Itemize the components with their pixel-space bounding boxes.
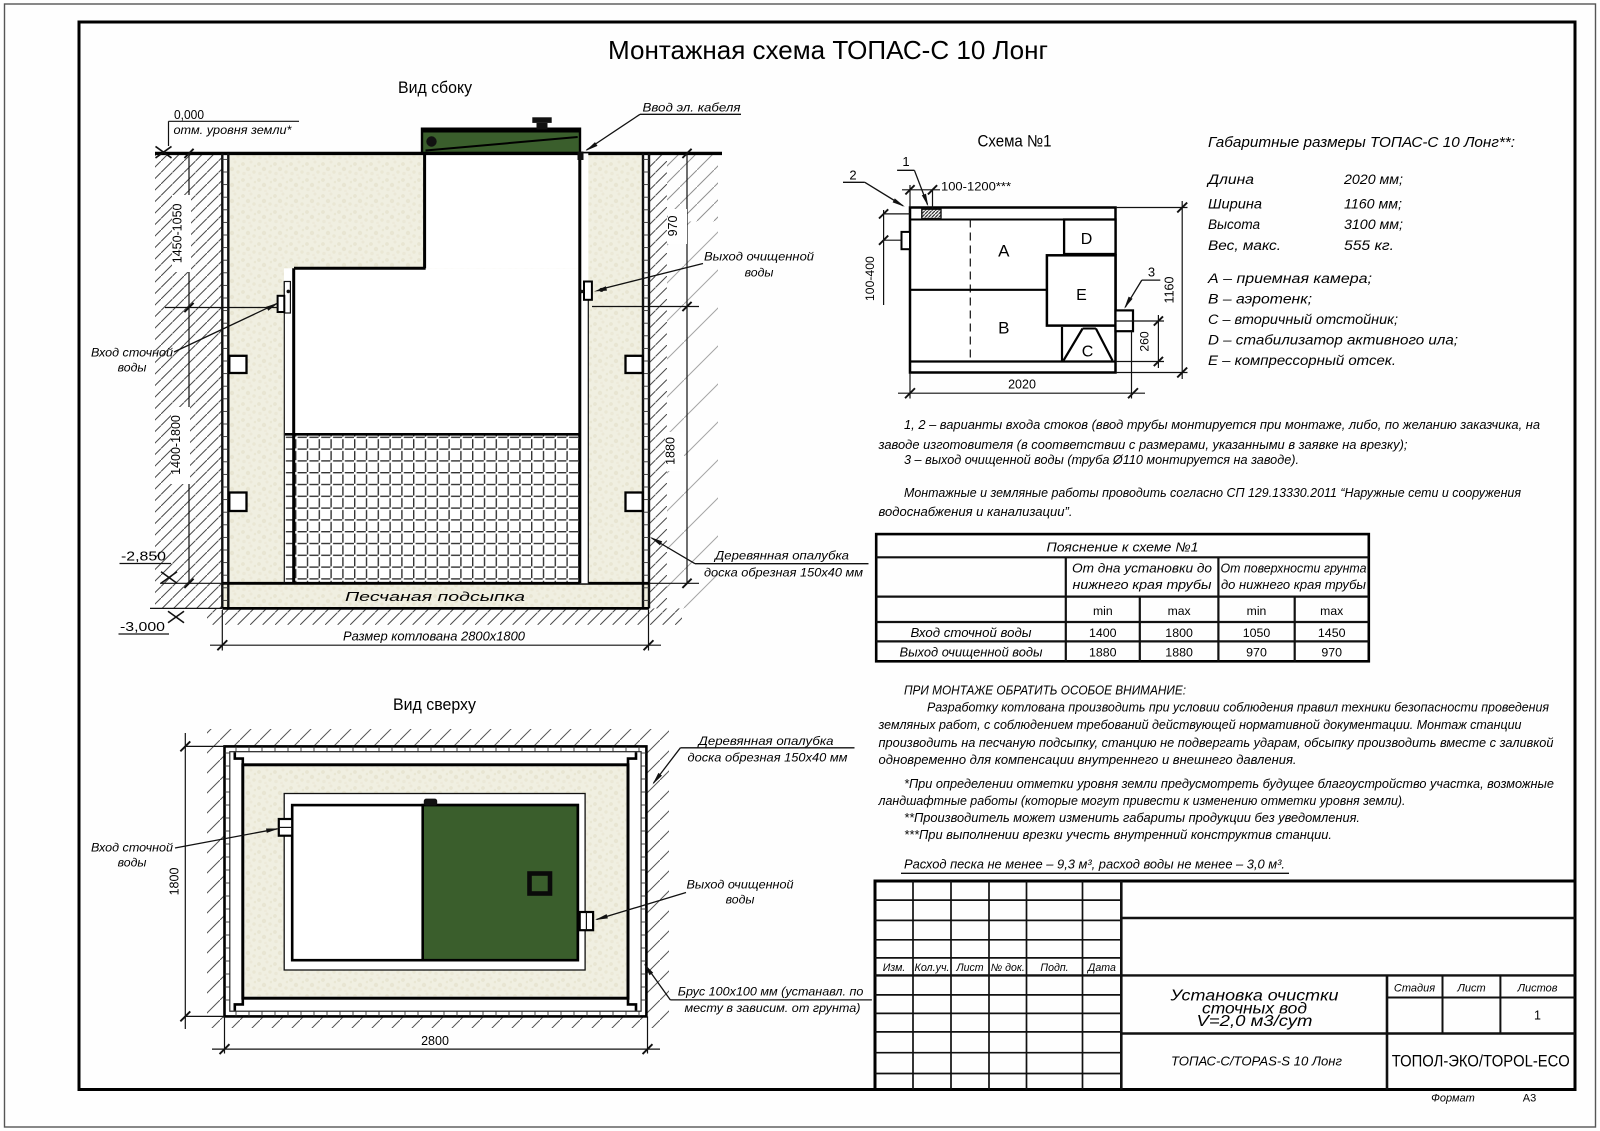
svg-text:2020: 2020: [1008, 378, 1036, 392]
svg-text:Вес, макс.: Вес, макс.: [1208, 238, 1281, 254]
svg-text:100-400: 100-400: [863, 256, 877, 301]
svg-text:одновременно для компенсации в: одновременно для компенсации внутреннего…: [879, 752, 1297, 767]
svg-text:3100 мм;: 3100 мм;: [1344, 217, 1403, 233]
svg-text:Брус 100х100 мм (устанавл. по: Брус 100х100 мм (устанавл. по: [678, 984, 864, 998]
svg-text:1: 1: [902, 154, 909, 169]
svg-text:Стадия: Стадия: [1394, 983, 1435, 995]
svg-text:доска обрезная 150х40 мм: доска обрезная 150х40 мм: [688, 751, 849, 765]
svg-text:3 – выход очищенной воды (труб: 3 – выход очищенной воды (труба Ø110 мон…: [904, 452, 1299, 467]
svg-text:1, 2 – варианты входа стоков: 1, 2 – варианты входа стоков (ввод трубы…: [904, 417, 1540, 432]
svg-text:***При выполнении врезки учест: ***При выполнении врезки учесть внутренн…: [904, 827, 1332, 842]
svg-text:*При определении отметки уровн: *При определении отметки уровня земли пр…: [904, 776, 1554, 791]
svg-text:B: B: [998, 319, 1009, 338]
svg-text:№ док.: № док.: [991, 962, 1025, 974]
svg-text:Монтажная схема ТОПАС-С 10 Лон: Монтажная схема ТОПАС-С 10 Лонг: [608, 35, 1048, 65]
svg-text:970: 970: [1246, 646, 1267, 660]
svg-text:3: 3: [1148, 265, 1155, 280]
svg-text:Вид сбоку: Вид сбоку: [398, 79, 473, 97]
svg-text:1160: 1160: [1162, 277, 1176, 304]
svg-text:Вид сверху: Вид сверху: [393, 696, 477, 714]
svg-text:max: max: [1168, 604, 1191, 618]
svg-text:min: min: [1247, 604, 1267, 618]
svg-text:Дата: Дата: [1087, 962, 1116, 974]
svg-text:D: D: [1081, 231, 1093, 248]
svg-text:-2,850: -2,850: [121, 550, 166, 564]
svg-text:доска обрезная 150х40 мм: доска обрезная 150х40 мм: [704, 566, 864, 580]
svg-text:ландшафтные работы (которые мо: ландшафтные работы (которые могут привес…: [878, 793, 1406, 808]
svg-text:Е – компрессорный отсек.: Е – компрессорный отсек.: [1208, 353, 1396, 369]
svg-text:min: min: [1093, 604, 1113, 618]
svg-text:0,000: 0,000: [174, 108, 204, 122]
svg-text:100-1200***: 100-1200***: [941, 179, 1011, 193]
svg-text:воды: воды: [745, 266, 774, 280]
svg-text:Разработку котлована производи: Разработку котлована производить при усл…: [927, 700, 1549, 715]
svg-text:260: 260: [1138, 331, 1152, 352]
svg-text:От дна установки до: От дна установки до: [1072, 562, 1212, 576]
svg-text:Высота: Высота: [1208, 217, 1260, 233]
svg-text:D – стабилизатор активного ила: D – стабилизатор активного ила;: [1208, 333, 1458, 349]
svg-text:970: 970: [666, 216, 680, 237]
svg-text:Выход очищенной воды: Выход очищенной воды: [900, 646, 1044, 660]
svg-text:А3: А3: [1523, 1093, 1536, 1105]
svg-text:Листов: Листов: [1516, 983, 1557, 995]
svg-text:ТОПОЛ-ЭКО/TOPOL-ECO: ТОПОЛ-ЭКО/TOPOL-ECO: [1392, 1052, 1570, 1071]
svg-text:Кол.уч.: Кол.уч.: [915, 962, 950, 974]
svg-text:Лист: Лист: [1456, 983, 1485, 995]
svg-text:Деревянная опалубка: Деревянная опалубка: [696, 734, 833, 748]
svg-text:C: C: [1082, 344, 1094, 361]
svg-text:Лист: Лист: [955, 962, 983, 974]
svg-text:1: 1: [1534, 1009, 1541, 1023]
svg-text:Подп.: Подп.: [1040, 962, 1068, 974]
svg-text:1050: 1050: [1243, 626, 1271, 640]
svg-text:V=2,0 м3/сут: V=2,0 м3/сут: [1197, 1013, 1313, 1030]
svg-text:Песчаная подсыпка: Песчаная подсыпка: [345, 589, 525, 604]
svg-text:Выход очищенной: Выход очищенной: [687, 878, 794, 892]
svg-text:Деревянная опалубка: Деревянная опалубка: [713, 549, 849, 563]
svg-text:Вход сточной: Вход сточной: [91, 346, 173, 360]
svg-text:max: max: [1320, 604, 1343, 618]
svg-text:-3,000: -3,000: [120, 620, 165, 634]
svg-text:месту в зависим. от грунта): месту в зависим. от грунта): [685, 1001, 861, 1015]
svg-text:Вход сточной воды: Вход сточной воды: [911, 626, 1033, 640]
svg-text:Схема №1: Схема №1: [978, 133, 1052, 151]
svg-text:Изм.: Изм.: [883, 962, 906, 974]
svg-text:ПРИ МОНТАЖЕ ОБРАТИТЬ ОСОБОЕ ВН: ПРИ МОНТАЖЕ ОБРАТИТЬ ОСОБОЕ ВНИМАНИЕ:: [904, 683, 1186, 698]
svg-text:земляных работ, с соблюдением: земляных работ, с соблюдением требований…: [878, 717, 1522, 732]
svg-text:1800: 1800: [1165, 626, 1193, 640]
svg-text:555 кг.: 555 кг.: [1344, 238, 1394, 254]
svg-text:А – приемная камера;: А – приемная камера;: [1207, 271, 1372, 287]
svg-text:**Производитель может изменить: **Производитель может изменить габариты …: [904, 810, 1360, 825]
svg-text:Расход песка не менее – 9,3 м³: Расход песка не менее – 9,3 м³, расход в…: [904, 857, 1285, 872]
svg-text:2: 2: [849, 168, 856, 183]
svg-text:1880: 1880: [664, 437, 678, 465]
svg-text:970: 970: [1321, 646, 1342, 660]
svg-text:воды: воды: [726, 893, 755, 907]
svg-text:1400-1800: 1400-1800: [169, 415, 183, 475]
svg-text:Вход сточной: Вход сточной: [91, 841, 173, 855]
svg-text:1450: 1450: [1318, 626, 1346, 640]
svg-text:Размер котлована 2800х1800: Размер котлована 2800х1800: [343, 629, 526, 644]
svg-text:Длина: Длина: [1206, 172, 1254, 188]
svg-text:С – вторичный отстойник;: С – вторичный отстойник;: [1208, 312, 1398, 328]
svg-text:Ширина: Ширина: [1208, 197, 1262, 213]
svg-text:заводе изготовителя (в соответ: заводе изготовителя (в соответствии с ра…: [878, 437, 1408, 452]
svg-text:Формат: Формат: [1431, 1093, 1475, 1105]
svg-text:ТОПАС-С/TOPAS-S 10 Лонг: ТОПАС-С/TOPAS-S 10 Лонг: [1171, 1054, 1343, 1069]
svg-text:1160 мм;: 1160 мм;: [1344, 197, 1402, 213]
svg-text:Выход очищенной: Выход очищенной: [704, 250, 814, 264]
svg-text:отм. уровня земли*: отм. уровня земли*: [174, 123, 293, 137]
svg-text:водоснабжения и канализации”.: водоснабжения и канализации”.: [879, 504, 1073, 519]
svg-text:В – аэротенк;: В – аэротенк;: [1208, 292, 1312, 308]
svg-text:воды: воды: [118, 856, 147, 870]
svg-text:Монтажные и земляные работы пр: Монтажные и земляные работы проводить со…: [904, 485, 1521, 500]
svg-text:Габаритные размеры ТОПАС-С 10: Габаритные размеры ТОПАС-С 10 Лонг**:: [1208, 135, 1515, 151]
svg-text:нижнего края трубы: нижнего края трубы: [1073, 578, 1213, 592]
svg-text:2800: 2800: [421, 1034, 449, 1048]
svg-text:1400: 1400: [1089, 626, 1117, 640]
svg-text:1800: 1800: [168, 868, 182, 896]
svg-text:Ввод эл. кабеля: Ввод эл. кабеля: [643, 101, 741, 115]
svg-text:2020 мм;: 2020 мм;: [1343, 172, 1403, 188]
svg-text:Пояснение к схеме №1: Пояснение к схеме №1: [1047, 540, 1199, 555]
svg-text:до нижнего края трубы: до нижнего края трубы: [1221, 578, 1367, 592]
svg-text:E: E: [1076, 287, 1087, 304]
svg-text:1450-1050: 1450-1050: [171, 203, 185, 263]
svg-text:1880: 1880: [1165, 646, 1193, 660]
svg-text:A: A: [998, 242, 1010, 261]
svg-text:воды: воды: [118, 361, 147, 375]
svg-text:От поверхности грунта: От поверхности грунта: [1221, 562, 1367, 576]
svg-text:производить на песчаную подсып: производить на песчаную подсыпку, станци…: [879, 735, 1554, 750]
svg-text:1880: 1880: [1089, 646, 1117, 660]
